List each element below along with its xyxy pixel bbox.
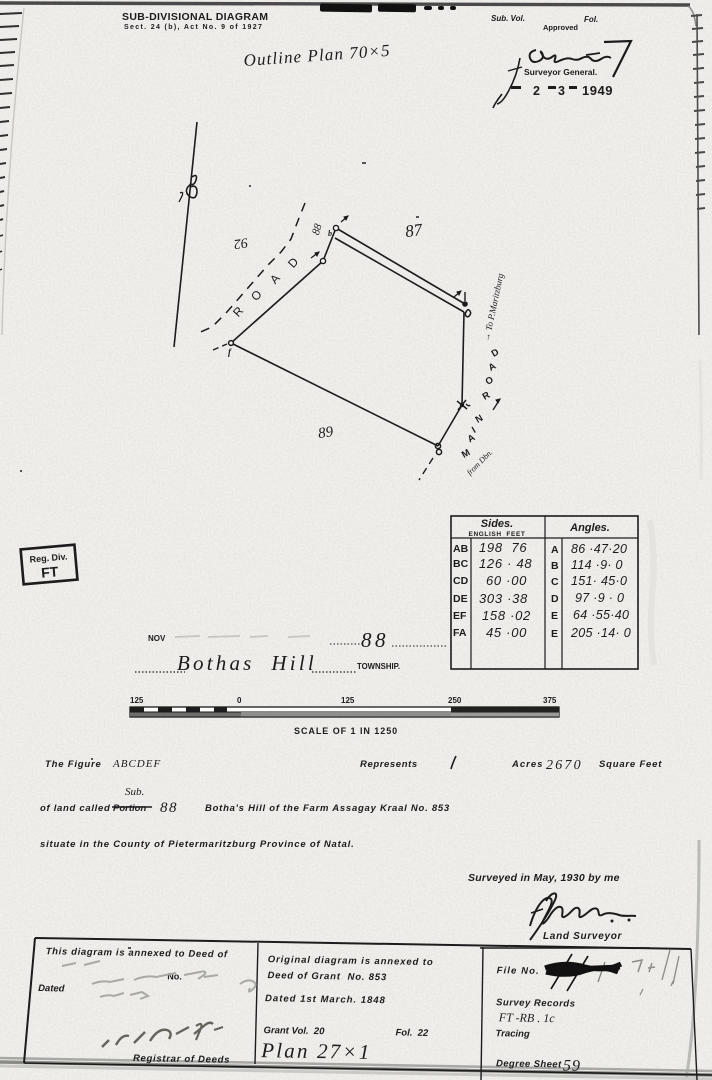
svg-text:Bothas Hill: Bothas Hill <box>177 651 317 675</box>
svg-text:Land Surveyor: Land Surveyor <box>543 931 623 942</box>
svg-text:EF: EF <box>453 610 467 622</box>
svg-text:DE: DE <box>453 593 468 605</box>
svg-text:C: C <box>551 576 559 588</box>
svg-text:0: 0 <box>237 696 242 705</box>
svg-text:125: 125 <box>130 696 144 705</box>
svg-text:D: D <box>551 593 559 605</box>
svg-text:The Figure: The Figure <box>45 759 102 770</box>
svg-text:FT: FT <box>40 563 59 580</box>
svg-text:E: E <box>551 610 558 622</box>
svg-text:Grant Vol. 20: Grant Vol. 20 <box>263 1025 325 1037</box>
svg-text:Fol.: Fol. <box>584 15 598 24</box>
svg-text:Surveyed in May, 1930 by me: Surveyed in May, 1930 by me <box>468 872 620 884</box>
svg-text:E: E <box>551 628 558 640</box>
svg-text:FA: FA <box>453 627 467 639</box>
svg-text:A: A <box>551 544 559 556</box>
svg-text:Plan 27×1: Plan 27×1 <box>260 1038 372 1064</box>
svg-text:Square Feet: Square Feet <box>599 759 662 770</box>
svg-text:59: 59 <box>563 1057 581 1074</box>
svg-text:125: 125 <box>341 696 355 705</box>
svg-text:ABCDEF: ABCDEF <box>112 758 161 770</box>
svg-text:45 ·00: 45 ·00 <box>486 625 527 640</box>
svg-text:303 ·38: 303 ·38 <box>479 591 528 606</box>
svg-text:126 · 48: 126 · 48 <box>479 556 532 571</box>
svg-text:Degree Sheet: Degree Sheet <box>496 1058 562 1070</box>
svg-text:Sides.: Sides. <box>481 518 513 530</box>
svg-text:Dated 1st March. 1848: Dated 1st March. 1848 <box>265 993 386 1006</box>
svg-text:97 ·9 · 0: 97 ·9 · 0 <box>575 591 624 605</box>
svg-text:205 ·14· 0: 205 ·14· 0 <box>570 626 631 640</box>
svg-text:Survey Records: Survey Records <box>496 997 576 1009</box>
svg-text:Dated: Dated <box>38 983 65 994</box>
svg-text:158 ·02: 158 ·02 <box>482 608 531 623</box>
svg-text:Portion: Portion <box>113 803 146 814</box>
svg-text:60 ·00: 60 ·00 <box>486 573 527 588</box>
svg-text:Registrar of Deeds: Registrar of Deeds <box>133 1053 230 1066</box>
svg-text:88: 88 <box>160 800 178 816</box>
svg-text:3: 3 <box>558 84 565 98</box>
svg-text:situate in the County of Piete: situate in the County of Pietermaritzbur… <box>40 839 355 850</box>
svg-text:BC: BC <box>453 558 469 570</box>
svg-text:FT -RB . 1c: FT -RB . 1c <box>498 1010 556 1025</box>
svg-text:TOWNSHIP.: TOWNSHIP. <box>357 662 400 671</box>
svg-text:B: B <box>551 560 559 572</box>
svg-text:198 76: 198 76 <box>479 540 527 555</box>
svg-text:2: 2 <box>533 84 540 98</box>
svg-text:Sect. 24 (b), Act No. 9 of 192: Sect. 24 (b), Act No. 9 of 1927 <box>124 24 263 31</box>
svg-text:151· 45·0: 151· 45·0 <box>571 574 627 588</box>
svg-text:b: b <box>328 229 332 238</box>
svg-text:Approved: Approved <box>543 23 578 32</box>
svg-text:92: 92 <box>233 234 249 251</box>
svg-text:89: 89 <box>317 424 335 442</box>
svg-text:250: 250 <box>448 696 462 705</box>
svg-text:File No.: File No. <box>497 965 540 977</box>
svg-text:Tracing: Tracing <box>495 1028 530 1040</box>
svg-text:Angles.: Angles. <box>569 522 610 534</box>
svg-text:114 ·9· 0: 114 ·9· 0 <box>571 558 623 572</box>
svg-text:Fol. 22: Fol. 22 <box>395 1027 429 1039</box>
svg-text:Surveyor General.: Surveyor General. <box>524 67 597 77</box>
svg-text:1949: 1949 <box>582 83 613 98</box>
svg-text:2670: 2670 <box>546 758 583 773</box>
svg-text:SUB-DIVISIONAL DIAGRAM: SUB-DIVISIONAL DIAGRAM <box>122 11 268 23</box>
svg-text:Represents: Represents <box>360 759 418 770</box>
svg-text:Botha's Hill of the Farm Assag: Botha's Hill of the Farm Assagay Kraal N… <box>205 803 450 814</box>
svg-text:of land called: of land called <box>40 803 111 814</box>
svg-text:Sub. Vol.: Sub. Vol. <box>491 14 525 23</box>
svg-text:64 ·55·40: 64 ·55·40 <box>573 608 629 622</box>
svg-text:86 ·47·20: 86 ·47·20 <box>571 542 627 556</box>
svg-text:SCALE OF 1 IN 1250: SCALE OF 1 IN 1250 <box>294 726 398 736</box>
svg-text:Sub.: Sub. <box>125 786 144 798</box>
svg-text:88: 88 <box>361 628 389 652</box>
svg-text:NOV: NOV <box>148 634 166 643</box>
svg-text:CD: CD <box>453 575 469 587</box>
svg-text:AB: AB <box>453 543 469 555</box>
svg-text:Deed of Grant No. 853: Deed of Grant No. 853 <box>267 970 387 983</box>
svg-text:375: 375 <box>543 696 557 705</box>
svg-text:Acres: Acres <box>511 759 543 770</box>
svg-text:ENGLISH FEET: ENGLISH FEET <box>469 531 526 538</box>
